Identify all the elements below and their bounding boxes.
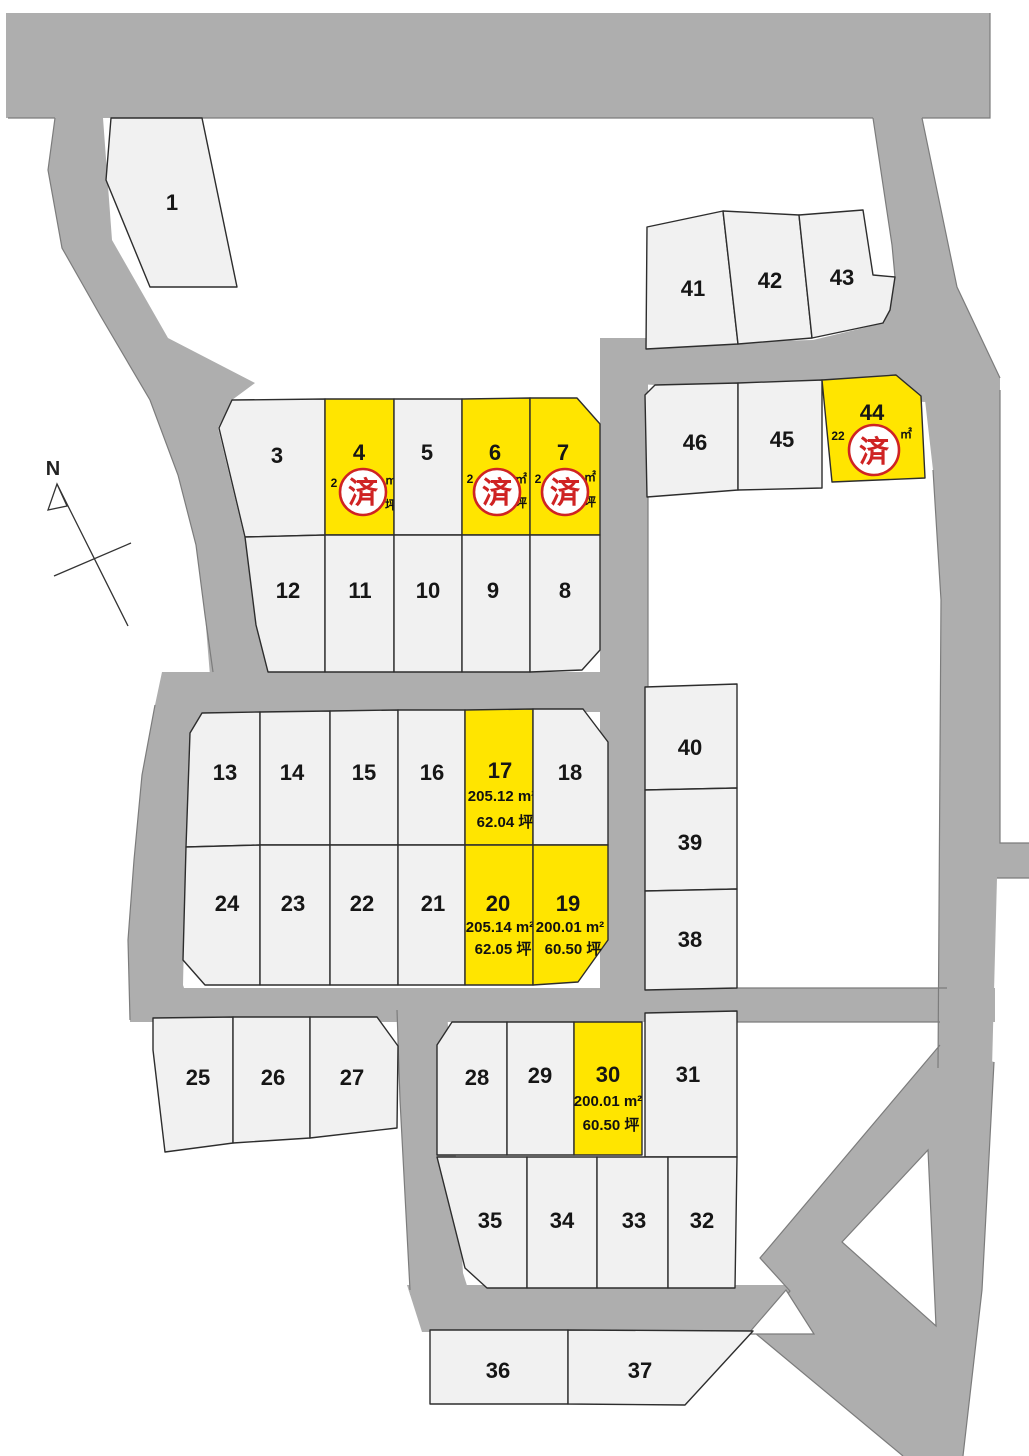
lot-20: 20 205.14 m² 62.05 坪 — [465, 845, 534, 985]
lot-24-number: 24 — [215, 891, 240, 916]
lot-38-number: 38 — [678, 927, 702, 952]
lot-45-number: 45 — [770, 427, 794, 452]
lot-24: 24 — [183, 845, 260, 985]
lot-37: 37 — [568, 1330, 753, 1405]
lot-35-number: 35 — [478, 1208, 502, 1233]
road-top-band — [6, 13, 990, 118]
lot-43-number: 43 — [830, 265, 854, 290]
lot-30-number: 30 — [596, 1062, 620, 1087]
sold-stamp: 済 — [859, 436, 890, 469]
lot-31: 31 — [645, 1011, 737, 1157]
sold-stamp: 済 — [482, 477, 513, 510]
sold-stamp: 済 — [348, 477, 379, 510]
lot-7: 7 2 ㎡ 坪 済 — [530, 398, 600, 535]
lot-4: 4 2 ㎡ 坪 済 — [325, 399, 397, 535]
lot-10-number: 10 — [416, 578, 440, 603]
lot-27: 27 — [310, 1017, 398, 1138]
lot-28-number: 28 — [465, 1065, 489, 1090]
lot-26: 26 — [233, 1017, 310, 1143]
lot-19: 19 200.01 m² 60.50 坪 — [533, 845, 608, 985]
lot-19-number: 19 — [556, 891, 580, 916]
lot-44-unit-fragment: ㎡ — [900, 426, 912, 441]
lot-30-area: 200.01 m² — [574, 1093, 642, 1110]
lot-19-area: 200.01 m² — [536, 919, 604, 936]
lot-30: 30 200.01 m² 60.50 坪 — [574, 1022, 642, 1155]
lot-17-area: 205.12 m² — [468, 788, 536, 805]
lot-45: 45 — [738, 380, 822, 490]
lot-4-area-fragment: 2 — [331, 476, 338, 490]
lot-8-shape — [530, 535, 600, 672]
lot-18: 18 — [533, 709, 608, 845]
lot-23: 23 — [260, 845, 330, 985]
lot-17-number: 17 — [488, 758, 512, 783]
lot-25-number: 25 — [186, 1065, 210, 1090]
lot-29-number: 29 — [528, 1063, 552, 1088]
lot-44: 44 22 ㎡ 済 — [822, 375, 925, 482]
lot-46-number: 46 — [683, 430, 707, 455]
lot-30-tsubo: 60.50 坪 — [583, 1117, 640, 1134]
lot-7-number: 7 — [557, 440, 569, 465]
lot-40: 40 — [645, 684, 737, 790]
lot-20-tsubo: 62.05 坪 — [475, 941, 532, 958]
lot-20-area: 205.14 m² — [466, 919, 534, 936]
lot-9-shape — [462, 535, 530, 672]
lot-10: 10 — [394, 535, 462, 672]
lot-3-number: 3 — [271, 443, 283, 468]
lot-17-tsubo: 62.04 坪 — [477, 814, 534, 831]
lot-4-number: 4 — [353, 440, 366, 465]
lot-27-number: 27 — [340, 1065, 364, 1090]
lot-25: 25 — [153, 1017, 233, 1152]
lot-31-number: 31 — [676, 1062, 700, 1087]
lot-42: 42 — [723, 211, 812, 344]
lot-13-number: 13 — [213, 760, 237, 785]
lot-11-number: 11 — [348, 578, 371, 603]
site-plan-map: N 1 3 4 2 ㎡ 坪 済 5 6 2 — [0, 0, 1029, 1456]
lot-1: 1 — [106, 118, 237, 287]
lot-36-number: 36 — [486, 1358, 510, 1383]
lot-8-number: 8 — [559, 578, 571, 603]
lot-21: 21 — [398, 845, 465, 985]
lot-32: 32 — [668, 1157, 737, 1288]
road-mid-horizontal — [162, 672, 648, 712]
lot-18-number: 18 — [558, 760, 582, 785]
lot-20-number: 20 — [486, 891, 510, 916]
lot-37-number: 37 — [628, 1358, 652, 1383]
lot-9: 9 — [462, 535, 530, 672]
lot-43: 43 — [799, 210, 895, 338]
lot-5-number: 5 — [421, 440, 433, 465]
lot-6-number: 6 — [489, 440, 501, 465]
sold-stamp: 済 — [550, 477, 581, 510]
lot-32-number: 32 — [690, 1208, 714, 1233]
lot-40-number: 40 — [678, 735, 702, 760]
north-compass: N — [46, 458, 131, 626]
lot-13: 13 — [186, 712, 260, 847]
lot-28: 28 — [437, 1022, 507, 1155]
lot-5: 5 — [394, 399, 462, 535]
lot-23-number: 23 — [281, 891, 305, 916]
lot-12-number: 12 — [276, 578, 300, 603]
lot-15: 15 — [330, 710, 398, 845]
lot-39: 39 — [645, 788, 737, 891]
lot-19-tsubo: 60.50 坪 — [545, 941, 602, 958]
lot-44-area-fragment: 22 — [831, 429, 845, 443]
lot-10-shape — [394, 535, 462, 672]
lot-14-number: 14 — [280, 760, 305, 785]
lot-22: 22 — [330, 845, 398, 985]
lot-42-number: 42 — [758, 268, 782, 293]
lot-15-number: 15 — [352, 760, 376, 785]
lot-22-number: 22 — [350, 891, 374, 916]
lot-17: 17 205.12 m² 62.04 坪 — [465, 709, 536, 845]
lot-29: 29 — [507, 1022, 574, 1155]
lot-33: 33 — [597, 1157, 668, 1288]
lot-5-shape — [394, 399, 462, 535]
lot-36: 36 — [430, 1330, 568, 1404]
lot-39-number: 39 — [678, 830, 702, 855]
lot-37-shape — [568, 1330, 753, 1405]
lot-46: 46 — [645, 383, 738, 497]
lot-41-number: 41 — [681, 276, 705, 301]
lot-41: 41 — [646, 211, 738, 349]
lot-33-number: 33 — [622, 1208, 646, 1233]
lot-6: 6 2 ㎡ 坪 済 — [462, 398, 530, 535]
lot-14: 14 — [260, 711, 330, 845]
site-plan-page: N 1 3 4 2 ㎡ 坪 済 5 6 2 — [0, 0, 1029, 1456]
lot-16-number: 16 — [420, 760, 444, 785]
lot-16: 16 — [398, 710, 465, 845]
lot-6-area-fragment: 2 — [467, 472, 474, 486]
lot-9-number: 9 — [487, 578, 499, 603]
lot-38: 38 — [645, 889, 737, 990]
lot-1-number: 1 — [166, 190, 178, 215]
lot-29-shape — [507, 1022, 574, 1155]
lot-30-shape — [574, 1022, 642, 1155]
lot-8: 8 — [530, 535, 600, 672]
lot-11: 11 — [325, 535, 394, 672]
lot-21-number: 21 — [421, 891, 445, 916]
lot-44-number: 44 — [860, 400, 885, 425]
lot-34: 34 — [527, 1157, 597, 1288]
lot-34-number: 34 — [550, 1208, 575, 1233]
north-label: N — [46, 458, 60, 480]
lot-26-number: 26 — [261, 1065, 285, 1090]
lot-7-area-fragment: 2 — [535, 472, 542, 486]
lot-11-shape — [325, 535, 394, 672]
